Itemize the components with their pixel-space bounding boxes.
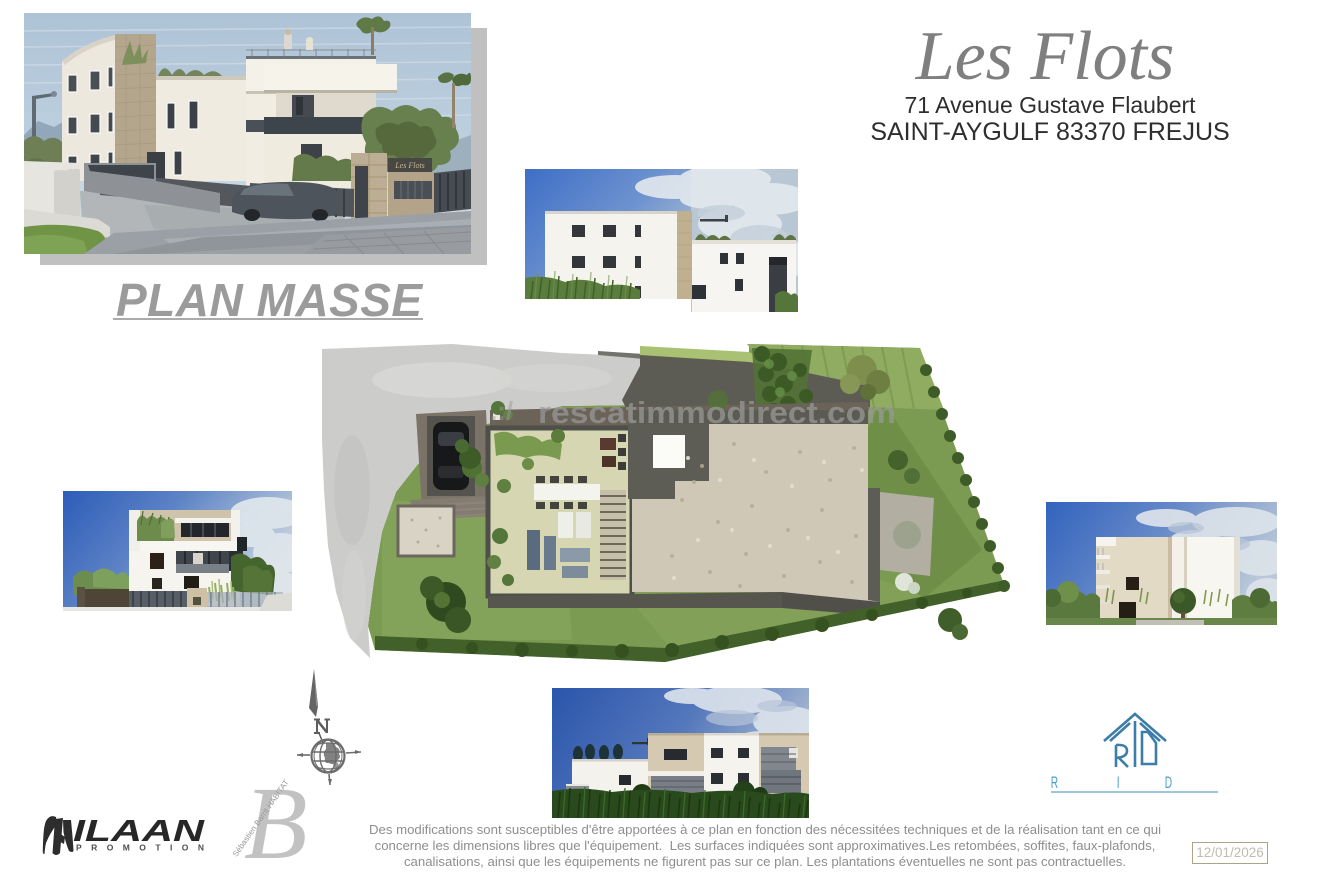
svg-text:PROMOTION: PROMOTION: [76, 843, 204, 853]
svg-text:D: D: [1165, 772, 1172, 791]
svg-text:I: I: [1117, 772, 1120, 791]
svg-text:R: R: [1051, 772, 1058, 791]
svg-text:.:/: .:/: [490, 396, 513, 426]
svg-text:Les Flots: Les Flots: [394, 161, 425, 170]
svg-text:rescatimmodirect.com: rescatimmodirect.com: [538, 395, 896, 430]
